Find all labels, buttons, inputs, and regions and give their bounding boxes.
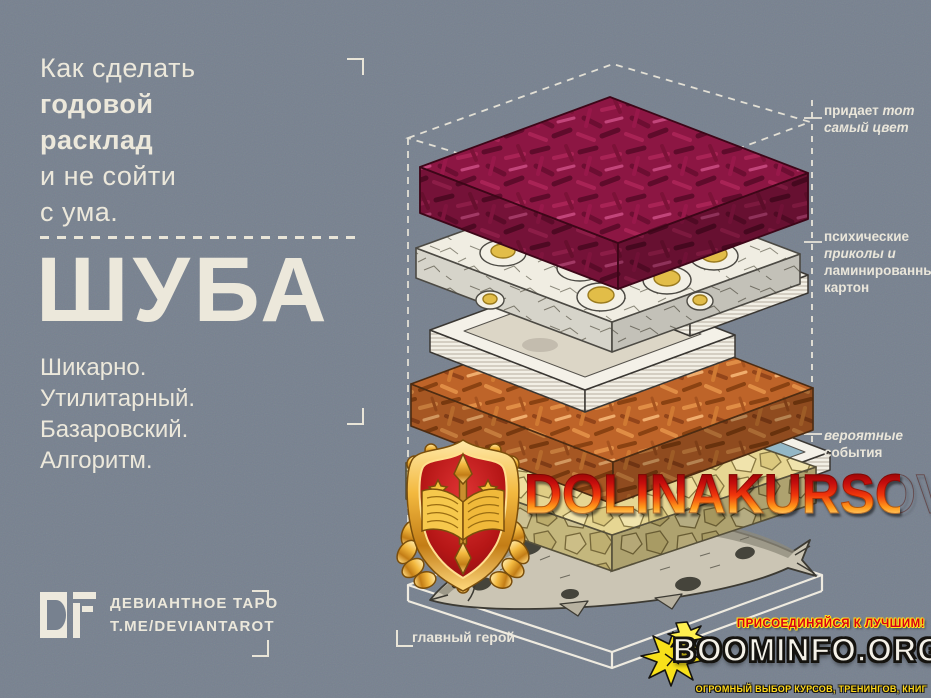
- boominfo-tagline-bottom: ОГРОМНЫЙ ВЫБОР КУРСОВ, ТРЕНИНГОВ, КНИГ: [696, 684, 927, 694]
- poster-canvas: THE LOVERS: [0, 0, 931, 698]
- watermark-text: DOLINAKURSOV: [524, 466, 900, 522]
- boominfo-tagline-top: ПРИСОЕДИНЯЙСЯ К ЛУЧШИМ!: [737, 618, 925, 630]
- boominfo-title: BOOMINFO.ORG: [673, 632, 931, 669]
- boominfo-badge: ПРИСОЕДИНЯЙСЯ К ЛУЧШИМ! BOOMINFO.ORG ОГР…: [639, 614, 931, 698]
- watermark-crest-icon: [393, 434, 533, 594]
